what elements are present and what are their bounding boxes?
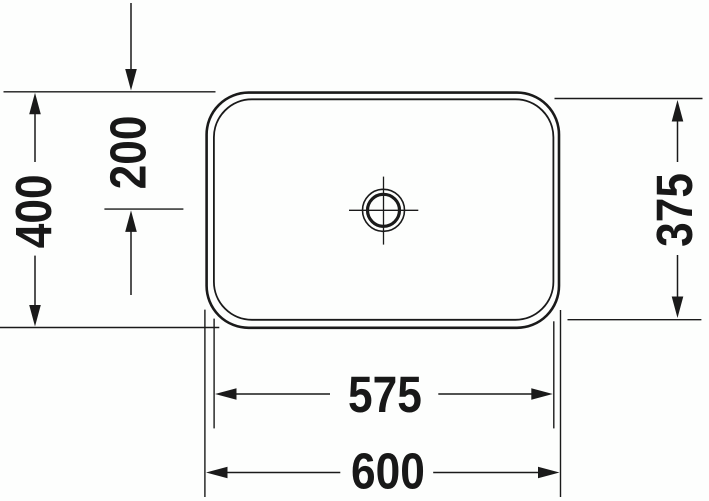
svg-text:200: 200 — [101, 116, 158, 190]
svg-text:600: 600 — [351, 444, 425, 501]
svg-text:375: 375 — [647, 173, 704, 247]
svg-text:575: 575 — [348, 367, 422, 424]
svg-text:400: 400 — [6, 174, 63, 248]
